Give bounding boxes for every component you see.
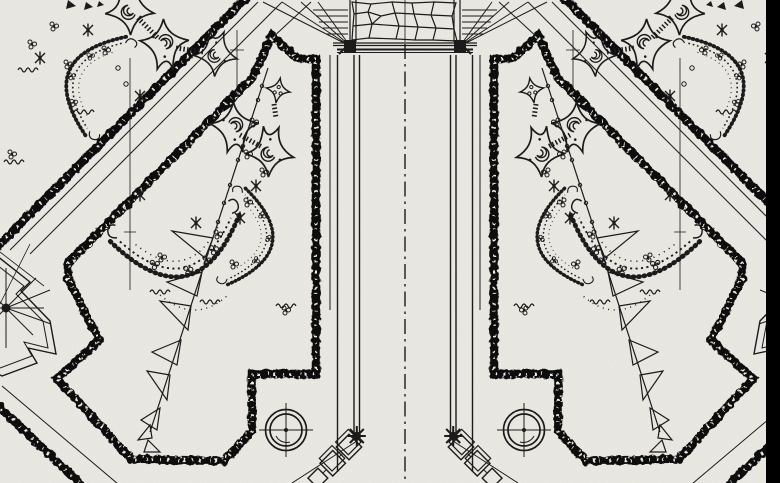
scan-edge-strip (766, 0, 780, 483)
scanned-plan-page (0, 0, 780, 483)
garden-plan-drawing (0, 0, 780, 483)
scan-noise (0, 0, 780, 483)
